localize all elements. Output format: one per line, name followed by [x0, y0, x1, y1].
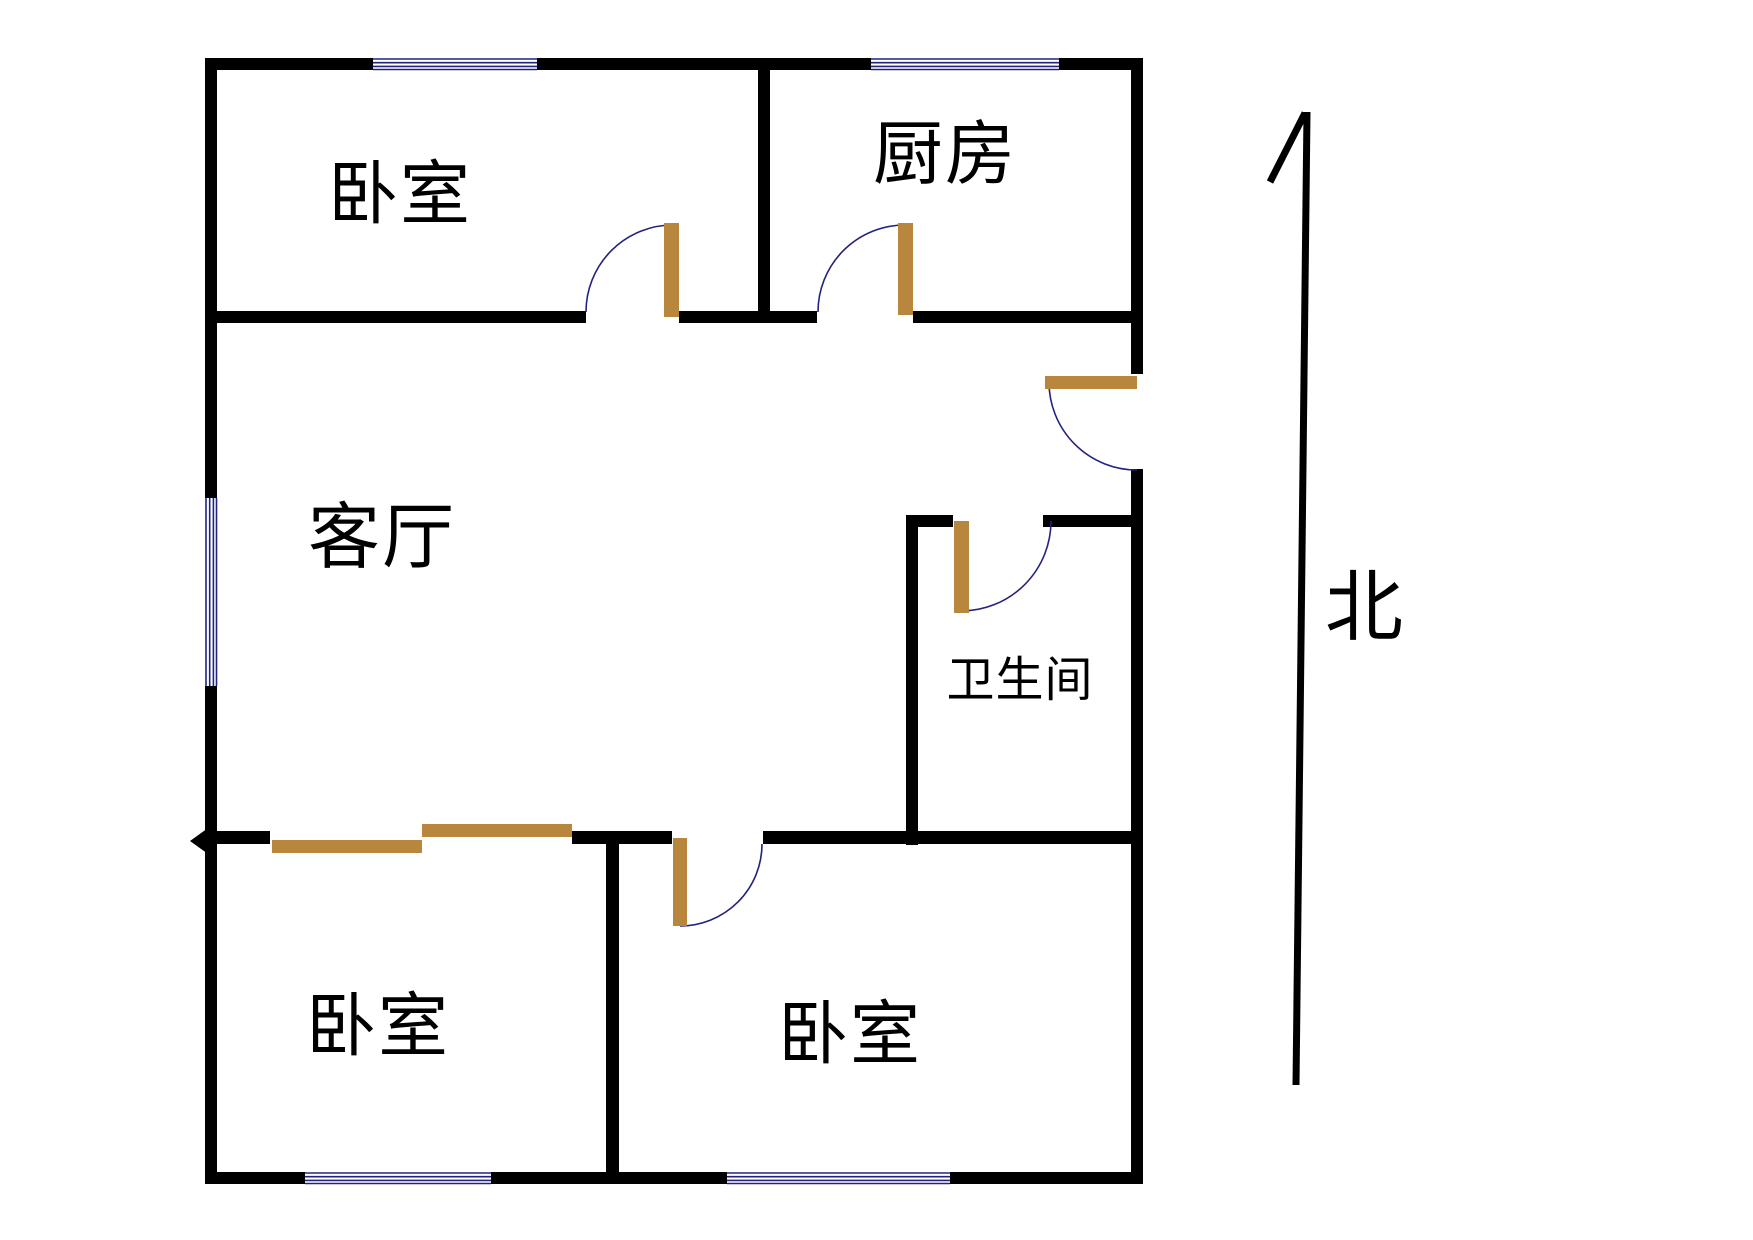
wall-right-lower	[1131, 469, 1143, 1184]
wall-right-upper	[1131, 58, 1143, 374]
window-bottom-bedroom-se	[727, 1172, 950, 1184]
window-left-living	[205, 498, 217, 686]
wall-living-north-2	[679, 311, 817, 323]
wall-bedroom-divider	[606, 844, 619, 1172]
door-arc-bedroom-nw	[586, 225, 673, 312]
room-label-living-room: 客厅	[308, 502, 456, 574]
door-leaf-bedroom-nw	[664, 223, 679, 317]
room-label-bathroom: 卫生间	[946, 657, 1093, 705]
door-arc-bathroom	[961, 521, 1051, 611]
wall-living-north-3	[913, 311, 1131, 323]
room-label-bedroom-nw: 卧室	[328, 161, 472, 231]
door-arc-bedroom-se	[680, 844, 762, 926]
door-leaf-balcony	[1045, 376, 1137, 389]
wall-living-south-1	[217, 831, 270, 844]
window-bottom-bedroom-sw	[305, 1172, 491, 1184]
room-label-bedroom-sw: 卧室	[306, 993, 450, 1063]
wall-living-south-2	[572, 831, 672, 844]
wall-bathroom-top-1	[906, 515, 953, 527]
door-arc-kitchen	[818, 225, 905, 312]
window-top-bedroom	[373, 58, 537, 70]
west-arrow-marker	[190, 823, 215, 859]
wall-kitchen-divider	[758, 70, 770, 323]
wall-living-south-3	[763, 831, 1131, 844]
floor-plan: 卧室 厨房 客厅 卫生间 卧室 卧室 北	[0, 0, 1753, 1240]
north-label: 北	[1325, 569, 1405, 647]
window-top-kitchen	[871, 58, 1059, 70]
sliding-door-panel-upper	[422, 824, 572, 837]
door-leaf-bathroom	[954, 521, 969, 613]
wall-living-north-1	[217, 311, 586, 323]
door-leaf-kitchen	[898, 223, 913, 315]
door-leaf-bedroom-se	[673, 838, 687, 926]
wall-bathroom-left	[906, 515, 918, 845]
wall-bathroom-top-2	[1043, 515, 1131, 527]
sliding-door-panel-lower	[272, 840, 422, 853]
room-label-kitchen: 厨房	[873, 121, 1017, 191]
north-arrow-icon	[1270, 112, 1307, 1085]
door-arc-balcony	[1049, 382, 1137, 470]
door-arcs	[586, 225, 1137, 926]
room-label-bedroom-se: 卧室	[778, 1001, 922, 1071]
